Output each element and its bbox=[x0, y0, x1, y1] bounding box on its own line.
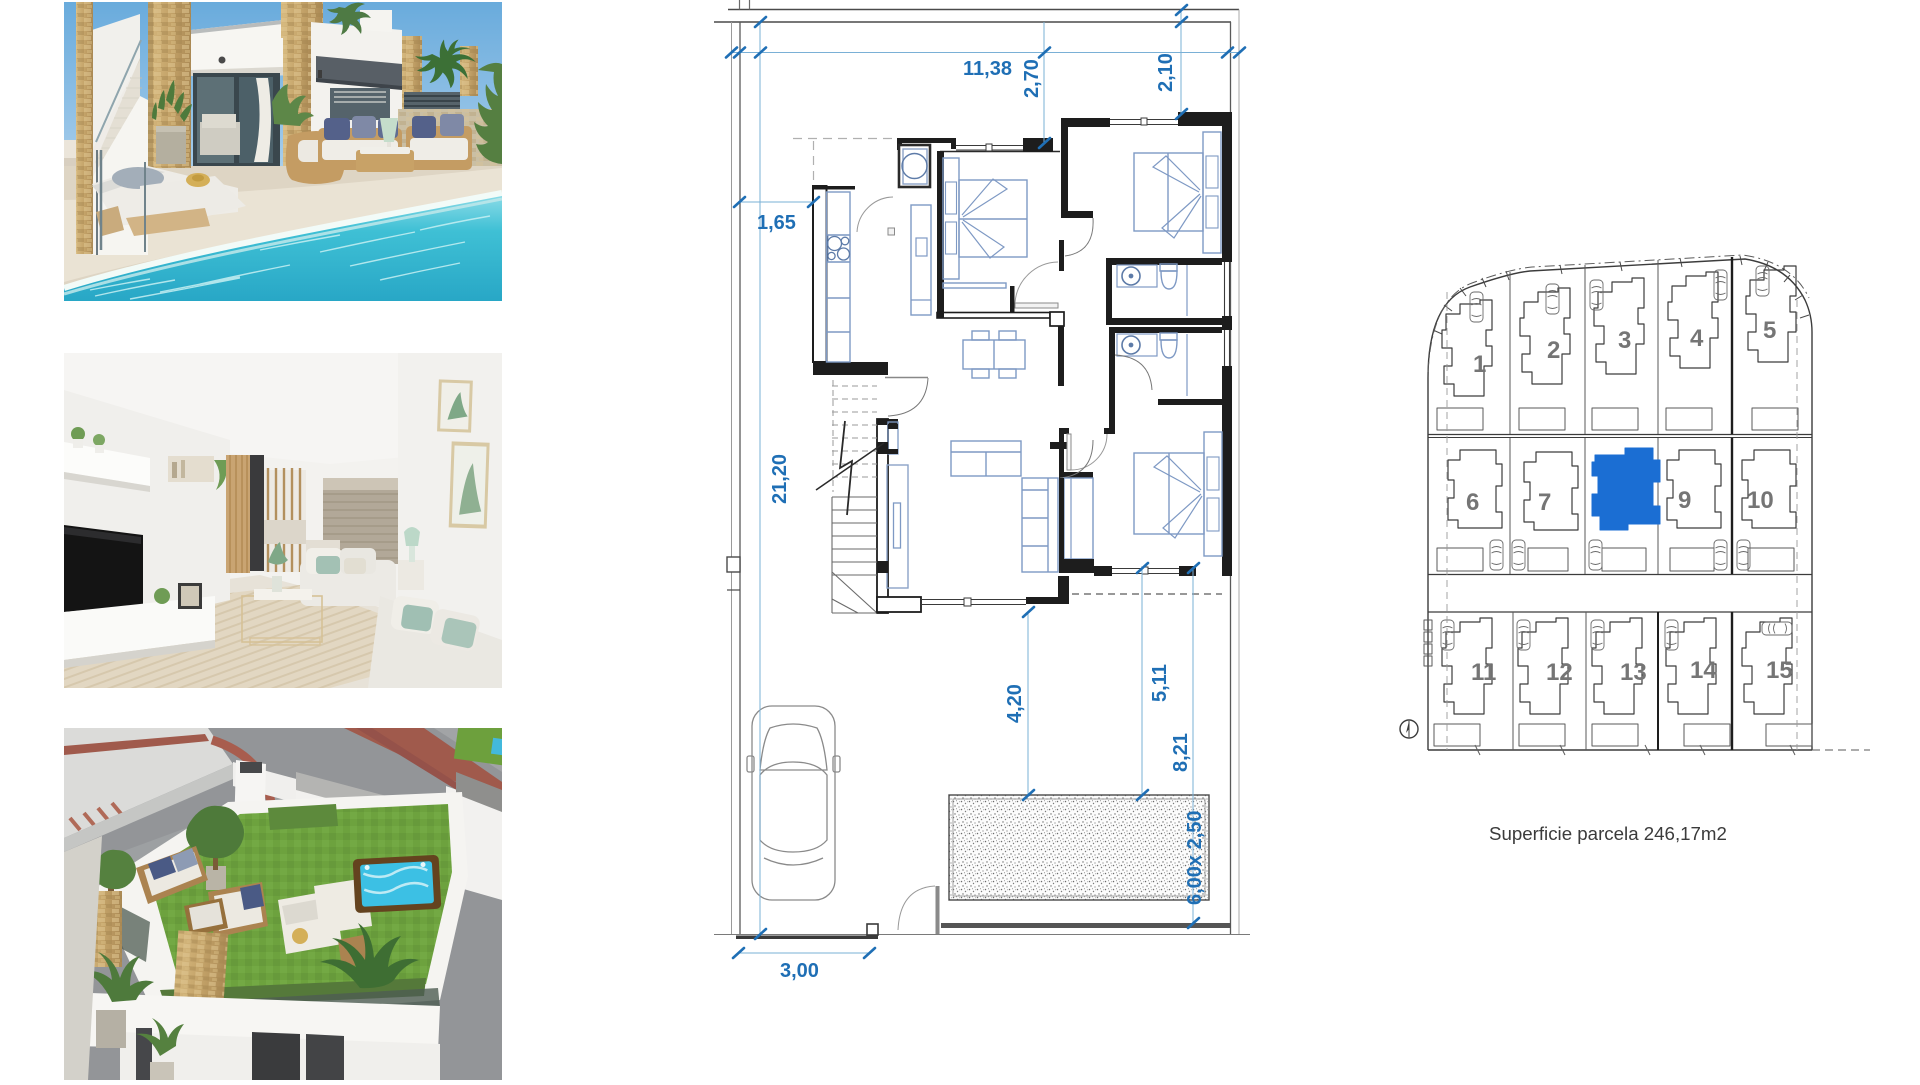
svg-text:11: 11 bbox=[1471, 659, 1496, 686]
svg-text:1,65: 1,65 bbox=[757, 212, 796, 234]
svg-text:7: 7 bbox=[1538, 489, 1551, 516]
svg-text:2,10: 2,10 bbox=[1155, 53, 1177, 92]
svg-text:3,00: 3,00 bbox=[780, 960, 819, 982]
svg-text:11,38: 11,38 bbox=[963, 58, 1012, 80]
svg-text:13: 13 bbox=[1620, 659, 1647, 686]
svg-text:3: 3 bbox=[1618, 327, 1631, 354]
svg-text:15: 15 bbox=[1766, 657, 1793, 684]
svg-text:2,70: 2,70 bbox=[1021, 59, 1043, 98]
svg-text:12: 12 bbox=[1546, 659, 1573, 686]
svg-text:4: 4 bbox=[1690, 325, 1704, 352]
svg-text:2: 2 bbox=[1547, 337, 1560, 364]
svg-text:8,21: 8,21 bbox=[1170, 733, 1192, 772]
svg-text:1: 1 bbox=[1473, 351, 1486, 378]
svg-text:10: 10 bbox=[1747, 487, 1774, 514]
svg-text:Superficie parcela 246,17m2: Superficie parcela 246,17m2 bbox=[1489, 823, 1727, 844]
svg-text:5,11: 5,11 bbox=[1149, 664, 1171, 702]
svg-text:5: 5 bbox=[1763, 317, 1776, 344]
svg-text:4,20: 4,20 bbox=[1004, 684, 1026, 723]
svg-text:14: 14 bbox=[1690, 657, 1717, 684]
svg-text:21,20: 21,20 bbox=[769, 454, 791, 504]
svg-text:9: 9 bbox=[1678, 487, 1691, 514]
svg-text:6,00x 2,50: 6,00x 2,50 bbox=[1184, 810, 1206, 905]
svg-text:6: 6 bbox=[1466, 489, 1479, 516]
